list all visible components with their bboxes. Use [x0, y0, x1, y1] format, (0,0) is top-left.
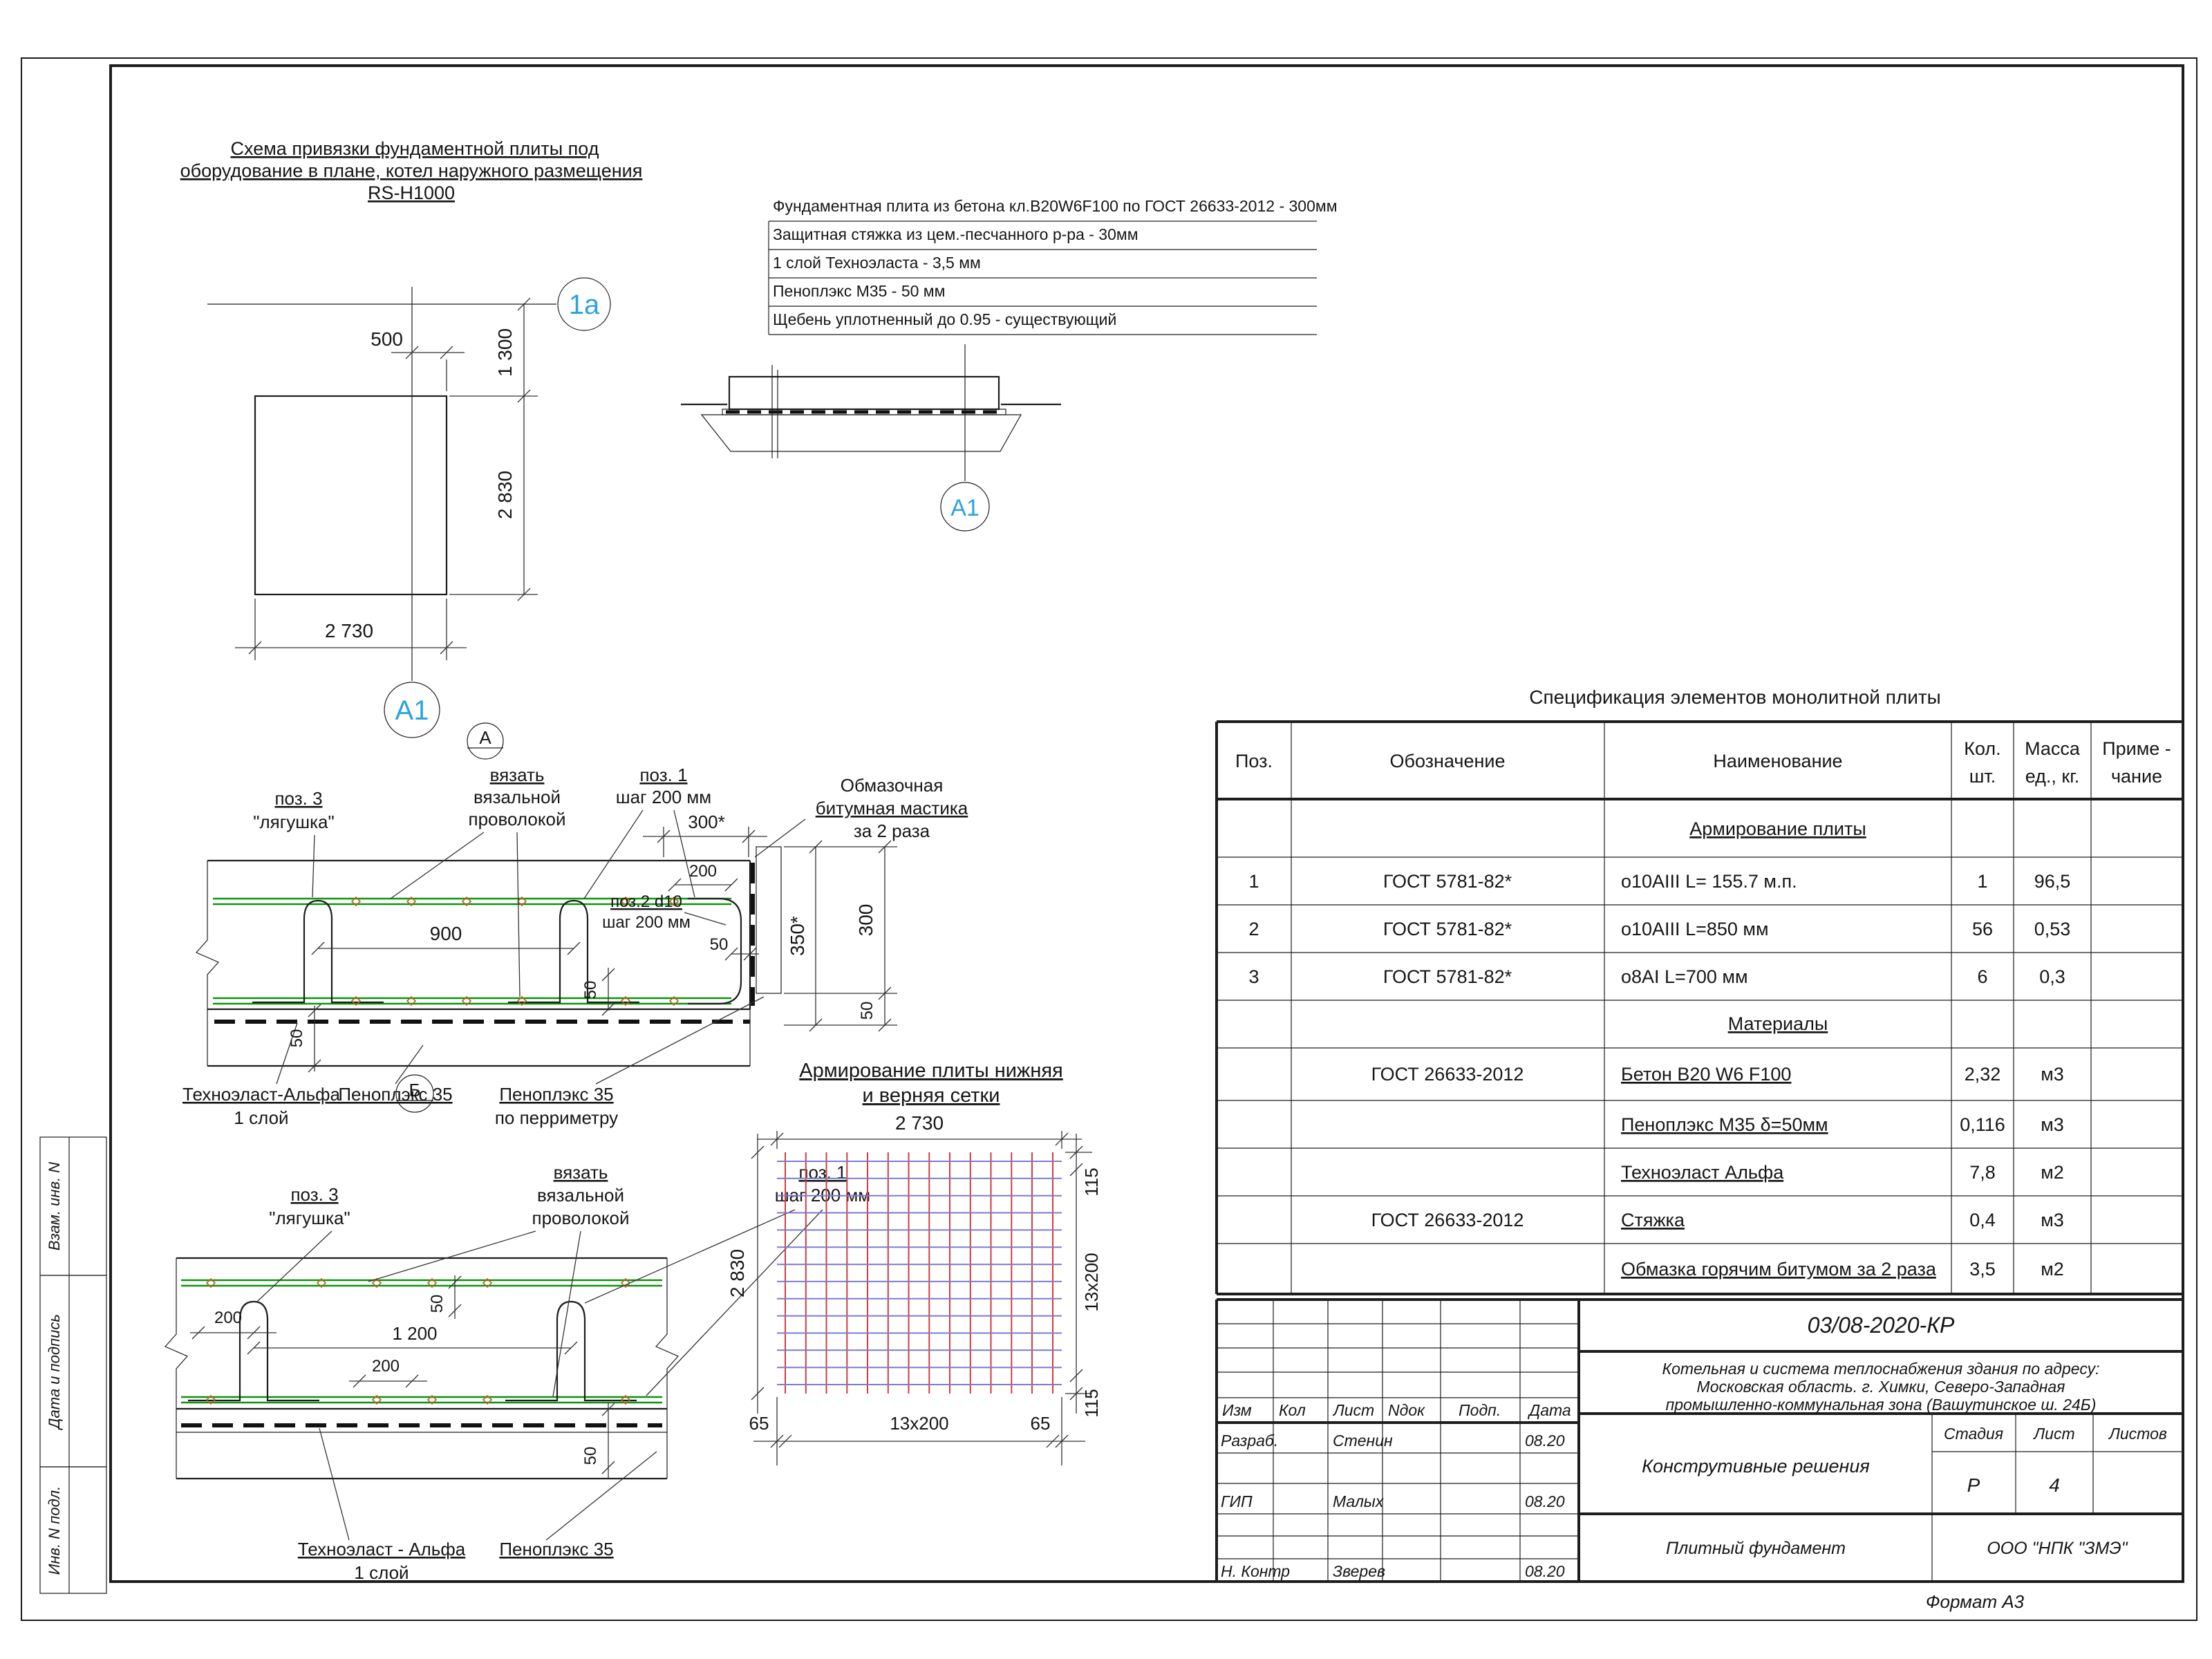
cell-pos: 1 — [1248, 871, 1259, 892]
plan-title-line3: RS-H1000 — [368, 182, 455, 203]
spec-row-3: 3 ГОСТ 5781-82* о8АI L=700 мм 6 0,3 — [1248, 966, 2065, 987]
tb-h-ndok: Nдок — [1388, 1401, 1425, 1419]
cell-unit: м2 — [2041, 1162, 2064, 1183]
plan-view: Схема привязки фундаментной плиты под об… — [180, 138, 643, 759]
plan-dim-1300: 1 300 — [494, 328, 516, 377]
foundation-cross-section: A1 — [681, 344, 1061, 531]
axis-label-a1-plan: A1 — [395, 695, 429, 726]
spec-group-armir: Армирование плиты — [1689, 818, 1866, 839]
grid-dim-2830: 2 830 — [727, 1249, 748, 1297]
tb-object-name: Плитный фундамент — [1666, 1539, 1846, 1558]
cell-name: Стяжка — [1621, 1210, 1685, 1230]
grid-dim-65-right: 65 — [1031, 1413, 1051, 1434]
cell-qty: 6 — [1977, 966, 1987, 987]
a-label-tie-1: вязать — [490, 765, 545, 785]
spec-h-mass1: Масса — [2025, 738, 2081, 759]
layer-5: Щебень уплотненный до 0.95 - существующи… — [773, 310, 1116, 328]
tb-r3-date: 08.20 — [1525, 1562, 1565, 1580]
spec-mat-2: Пеноплэкс М35 δ=50мм 0,116 м3 — [1621, 1114, 2064, 1135]
a-label-pen-per-1: Пеноплэкс 35 — [499, 1084, 613, 1105]
cell-unit: м3 — [2041, 1210, 2064, 1230]
plan-title-line2: оборудование в плане, котел наружного ра… — [180, 160, 643, 181]
grid-dim-2730: 2 730 — [895, 1112, 944, 1134]
cell-des: ГОСТ 5781-82* — [1383, 919, 1512, 939]
tb-r1-date: 08.20 — [1525, 1432, 1565, 1450]
sheet-format-label: Формат А3 — [1926, 1591, 2025, 1612]
grid-title-line2: и верняя сетки — [863, 1085, 1000, 1107]
section-callout-b: Б — [409, 1080, 420, 1100]
a-dim-50-edge: 50 — [710, 935, 729, 954]
cell-name: Техноэласт Альфа — [1621, 1162, 1784, 1183]
plan-dim-2730: 2 730 — [325, 620, 373, 641]
b-label-tie-3: проволокой — [532, 1208, 630, 1228]
cell-mass: 0,53 — [2034, 919, 2071, 939]
b-label-tie-2: вязальной — [537, 1185, 624, 1206]
b-dim-200-left: 200 — [214, 1309, 242, 1327]
tb-drawing-name: Конструтивные решения — [1642, 1456, 1870, 1477]
spec-mat-5: Обмазка горячим битумом за 2 раза 3,5 м2 — [1621, 1259, 2064, 1280]
grid-dim-13x200-bottom: 13x200 — [890, 1413, 948, 1434]
tb-h-sheet: Лист — [2032, 1425, 2074, 1443]
cell-name: Обмазка горячим битумом за 2 раза — [1621, 1259, 1937, 1280]
tb-h-data: Дата — [1527, 1401, 1571, 1419]
cell-name: Бетон В20 W6 F100 — [1621, 1064, 1791, 1085]
tb-r1-role: Разраб. — [1221, 1432, 1278, 1450]
spec-h-qty1: Кол. — [1964, 738, 2000, 759]
cell-qty: 0,4 — [1969, 1210, 1996, 1230]
tb-project-line1: Котельная и система теплоснабжения здани… — [1662, 1360, 2100, 1378]
spec-title: Спецификация элементов монолитной плиты — [1529, 686, 1941, 708]
a-label-pos1-line2: шаг 200 мм — [616, 787, 711, 807]
tb-h-podp: Подп. — [1459, 1401, 1501, 1419]
b-label-pen: Пеноплэкс 35 — [499, 1539, 613, 1559]
tb-doc-number: 03/08-2020-КР — [1808, 1313, 1955, 1338]
cell-des: ГОСТ 5781-82* — [1383, 871, 1512, 892]
tb-stage-value: Р — [1967, 1474, 1980, 1496]
a-label-pos2-line2: шаг 200 мм — [602, 913, 691, 932]
a-label-pos1-line1: поз. 1 — [639, 765, 687, 785]
a-dim-300: 300 — [855, 904, 877, 937]
tb-company-name: ООО "НПК "ЗМЭ" — [1987, 1539, 2128, 1558]
b-label-tech-2: 1 слой — [354, 1562, 409, 1583]
cell-unit: м3 — [2041, 1114, 2064, 1135]
a-dim-350s: 350* — [787, 916, 808, 956]
a-label-mastic-3: за 2 раза — [854, 821, 930, 841]
plan-title-line1: Схема привязки фундаментной плиты под — [231, 138, 599, 159]
spec-h-mass2: ед., кг. — [2025, 766, 2080, 787]
cell-mass: 0,3 — [2039, 966, 2065, 987]
b-dim-1200: 1 200 — [392, 1323, 437, 1344]
cell-qty: 2,32 — [1965, 1064, 2001, 1085]
layer-1: Фундаментная плита из бетона кл.B20W6F10… — [773, 197, 1338, 215]
axis-label-1a: 1a — [569, 290, 600, 320]
cell-name: о10АIII L=850 мм — [1621, 919, 1769, 939]
spec-h-note1: Приме - — [2102, 738, 2171, 759]
spec-h-pos: Поз. — [1235, 751, 1273, 771]
tb-r2-name: Малых — [1333, 1492, 1385, 1510]
layer-3: 1 слой Техноэласта - 3,5 мм — [773, 254, 981, 272]
layer-2: Защитная стяжка из цем.-песчанного р-ра … — [773, 225, 1138, 243]
cell-des: ГОСТ 26633-2012 — [1371, 1210, 1524, 1230]
reinforcement-grid: Армирование плиты нижняя и верняя сетки … — [727, 1060, 1102, 1465]
a-label-tie-2: вязальной — [474, 787, 561, 807]
a-label-pos3-line2: "лягушка" — [253, 812, 334, 832]
a-label-pos3-line1: поз. 3 — [274, 788, 322, 809]
b-dim-200-low: 200 — [372, 1357, 400, 1376]
spec-mat-3: Техноэласт Альфа 7,8 м2 — [1621, 1162, 2064, 1183]
section-b-detail: Б 200 1 200 50 — [165, 1075, 870, 1583]
a-label-mastic-2: битумная мастика — [816, 798, 968, 818]
stamp-vzam: Взам. инв. N — [46, 1162, 63, 1250]
tb-r2-date: 08.20 — [1525, 1492, 1565, 1510]
grid-dim-65-left: 65 — [749, 1413, 769, 1434]
tb-sheet-value: 4 — [2049, 1474, 2060, 1496]
tb-h-list: Лист — [1332, 1401, 1374, 1419]
tb-h-kol: Кол — [1279, 1401, 1306, 1419]
spec-row-1: 1 ГОСТ 5781-82* о10АIII L= 155.7 м.п. 1 … — [1248, 871, 2070, 892]
cell-name: о8АI L=700 мм — [1621, 966, 1748, 987]
a-dim-50-right: 50 — [858, 1002, 877, 1020]
a-label-mastic-1: Обмазочная — [841, 775, 944, 796]
grid-dim-13x200-right: 13x200 — [1081, 1253, 1102, 1311]
a-label-tie-3: проволокой — [469, 809, 566, 829]
cell-qty: 3,5 — [1969, 1259, 1996, 1280]
cell-qty: 7,8 — [1969, 1162, 1996, 1183]
grid-dim-115-top: 115 — [1081, 1168, 1102, 1196]
tb-r2-role: ГИП — [1221, 1492, 1253, 1510]
a-dim-900: 900 — [430, 923, 462, 944]
plan-dim-2830: 2 830 — [494, 471, 516, 519]
tb-project-line3: промышленно-коммунальная зона (Вашутинск… — [1666, 1396, 2097, 1414]
spec-h-qty2: шт. — [1969, 766, 1996, 787]
spec-h-note2: чание — [2111, 766, 2162, 787]
spec-h-name: Наименование — [1713, 751, 1842, 771]
b-label-tech-1: Техноэласт - Альфа — [298, 1539, 466, 1559]
layer-4: Пеноплэкс М35 - 50 мм — [773, 282, 945, 300]
cell-unit: м2 — [2041, 1259, 2064, 1280]
cell-unit: м3 — [2041, 1064, 2064, 1085]
grid-dim-115-bottom: 115 — [1081, 1389, 1102, 1417]
plan-dim-500: 500 — [371, 328, 403, 350]
a-label-pen: Пеноплэкс 35 — [338, 1084, 452, 1105]
tb-r1-name: Стенин — [1333, 1432, 1393, 1450]
a-dim-200: 200 — [689, 862, 717, 881]
b-label-pos3-line1: поз. 3 — [290, 1184, 338, 1205]
cell-qty: 1 — [1977, 871, 1987, 892]
b-dim-50-bot: 50 — [581, 1447, 600, 1465]
tb-r3-role: Н. Контр — [1221, 1562, 1290, 1580]
spec-mat-4: ГОСТ 26633-2012 Стяжка 0,4 м3 — [1371, 1210, 2064, 1230]
cell-des: ГОСТ 26633-2012 — [1371, 1064, 1524, 1085]
tb-h-izm: Изм — [1222, 1401, 1252, 1419]
a-dim-50-cover: 50 — [581, 981, 600, 1000]
a-label-tech-2: 1 слой — [234, 1107, 288, 1128]
spec-mat-1: ГОСТ 26633-2012 Бетон В20 W6 F100 2,32 м… — [1371, 1064, 2064, 1085]
cell-name: о10АIII L= 155.7 м.п. — [1621, 871, 1797, 892]
spec-table: Спецификация элементов монолитной плиты … — [1217, 686, 2183, 1294]
tb-project-line2: Московская область. г. Химки, Северо-Зап… — [1697, 1378, 2065, 1396]
cell-mass: 96,5 — [2034, 871, 2071, 892]
cell-pos: 2 — [1248, 919, 1259, 939]
spec-group-materials: Материалы — [1728, 1013, 1828, 1034]
a-label-tech-1: Техноэласт-Альфа — [182, 1084, 340, 1105]
a-dim-300s: 300* — [688, 812, 725, 832]
b-dim-50-top: 50 — [428, 1295, 447, 1313]
section-callout-a: А — [479, 727, 491, 748]
grid-title-line1: Армирование плиты нижняя — [799, 1060, 1063, 1082]
tb-h-stage: Стадия — [1944, 1425, 2003, 1443]
cell-des: ГОСТ 5781-82* — [1383, 966, 1512, 987]
spec-row-2: 2 ГОСТ 5781-82* о10АIII L=850 мм 56 0,53 — [1248, 919, 2070, 939]
spec-h-des: Обозначение — [1390, 751, 1506, 771]
title-block: 03/08-2020-КР Котельная и система теплос… — [1217, 1300, 2183, 1582]
b-label-tie-1: вязать — [554, 1162, 608, 1183]
a-dim-50-left: 50 — [288, 1029, 306, 1048]
cell-qty: 56 — [1972, 919, 1993, 939]
b-label-pos3-line2: "лягушка" — [269, 1208, 350, 1228]
tb-r3-name: Зверев — [1333, 1562, 1385, 1580]
a-label-pos2-line1: поз.2 d10 — [610, 892, 682, 911]
drawing-sheet: Взам. инв. N Дата и подпись Инв. N подл.… — [0, 0, 2212, 1659]
tb-h-sheets: Листов — [2108, 1425, 2167, 1443]
a-label-pen-per-2: по перриметру — [495, 1107, 618, 1128]
cell-name: Пеноплэкс М35 δ=50мм — [1621, 1114, 1828, 1135]
layer-annotation: Фундаментная плита из бетона кл.B20W6F10… — [769, 197, 1338, 335]
cell-qty: 0,116 — [1960, 1114, 2005, 1135]
stamp-data-podpis: Дата и подпись — [46, 1314, 63, 1431]
section-marker-a1: A1 — [950, 495, 980, 521]
stamp-inv: Инв. N подл. — [46, 1486, 63, 1575]
side-stamps: Взам. инв. N Дата и подпись Инв. N подл. — [40, 1137, 106, 1593]
cell-pos: 3 — [1248, 966, 1259, 987]
